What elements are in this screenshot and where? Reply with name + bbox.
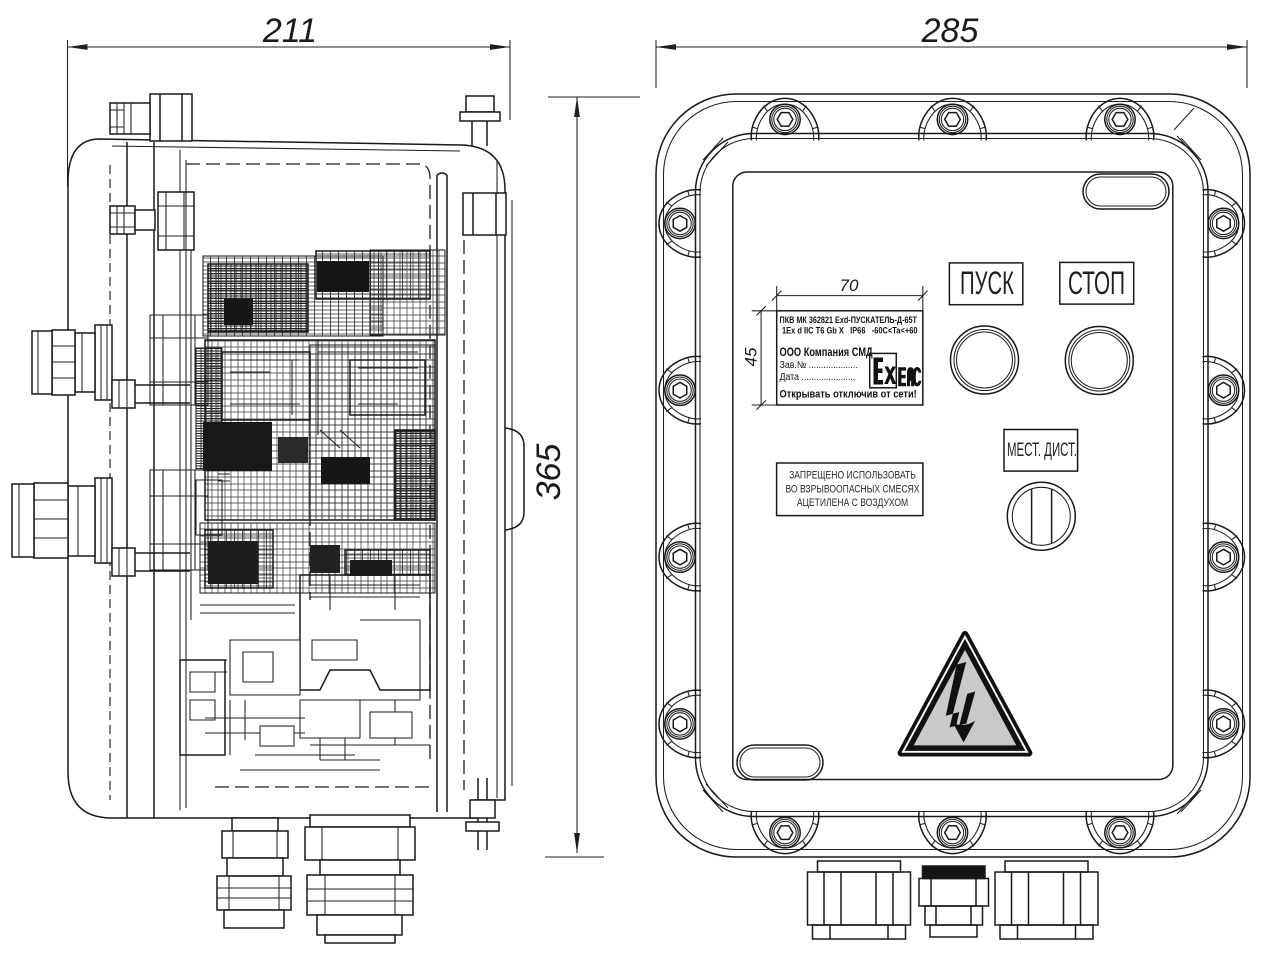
svg-text:365: 365 [530, 444, 568, 501]
svg-text:ООО Компания СМД: ООО Компания СМД [780, 346, 873, 360]
svg-text:АЦЕТИЛЕНА С ВОЗДУХОМ: АЦЕТИЛЕНА С ВОЗДУХОМ [797, 497, 908, 509]
svg-text:Зав.№ ....................: Зав.№ .................... [780, 360, 858, 371]
svg-text:70: 70 [840, 276, 859, 295]
svg-text:СТОП: СТОП [1068, 265, 1125, 301]
svg-text:285: 285 [921, 12, 979, 50]
svg-text:211: 211 [262, 12, 317, 50]
svg-text:ВО ВЗРЫВООПАСНЫХ СМЕСЯХ: ВО ВЗРЫВООПАСНЫХ СМЕСЯХ [785, 484, 919, 496]
svg-text:ЗАПРЕЩЕНО ИСПОЛЬЗОВАТЬ: ЗАПРЕЩЕНО ИСПОЛЬЗОВАТЬ [789, 470, 916, 482]
svg-text:МЕСТ. ДИСТ.: МЕСТ. ДИСТ. [1007, 440, 1077, 461]
svg-text:ПУСК: ПУСК [960, 265, 1014, 301]
svg-text:1Ex d IIC T6 Gb X IP66 -60: 1Ex d IIC T6 Gb X IP66 -60C<Ta<+60 [782, 325, 918, 336]
svg-text:ПКВ МК 362821 Exd-ПУСКАТЕЛЬ-Д-: ПКВ МК 362821 Exd-ПУСКАТЕЛЬ-Д-65Т [780, 314, 918, 325]
svg-text:Открывать отключив от сети!: Открывать отключив от сети! [780, 389, 917, 401]
svg-text:Дата ......................: Дата ...................... [780, 371, 856, 382]
svg-text:45: 45 [742, 347, 761, 366]
